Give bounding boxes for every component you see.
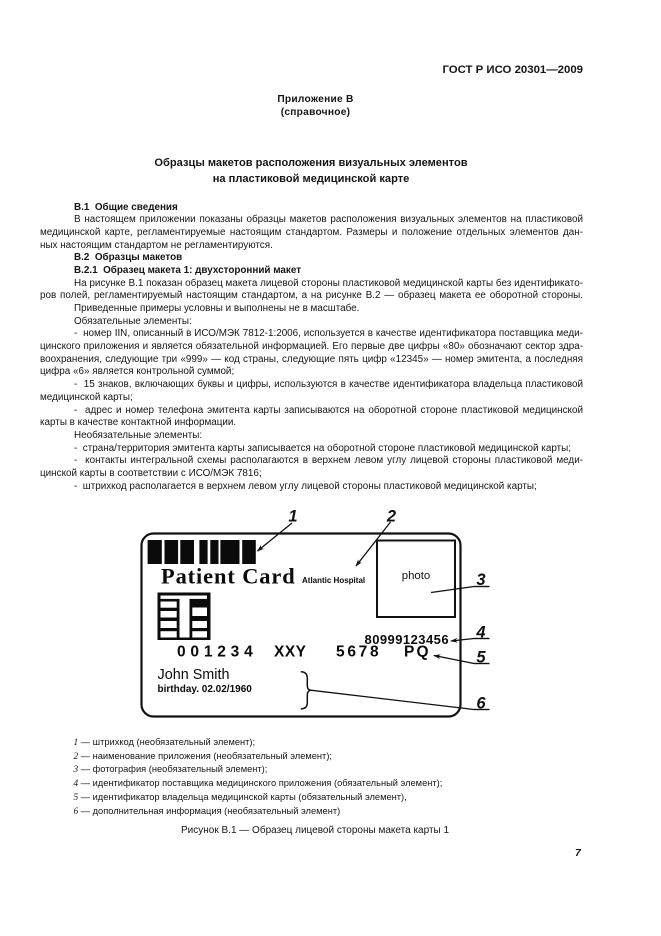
svg-text:birthday. 02.02/1960: birthday. 02.02/1960 [158, 684, 253, 695]
svg-text:John Smith: John Smith [158, 667, 230, 683]
svg-text:Atlantic Hospital: Atlantic Hospital [302, 576, 365, 585]
svg-text:2: 2 [386, 508, 396, 526]
svg-text:Patient Card: Patient Card [161, 564, 296, 589]
svg-text:001234: 001234 [177, 644, 258, 661]
svg-text:1: 1 [288, 508, 297, 526]
svg-text:PQ: PQ [404, 644, 431, 661]
svg-text:5678: 5678 [336, 644, 381, 661]
svg-text:XXY: XXY [274, 644, 307, 661]
svg-text:photo: photo [402, 570, 431, 582]
